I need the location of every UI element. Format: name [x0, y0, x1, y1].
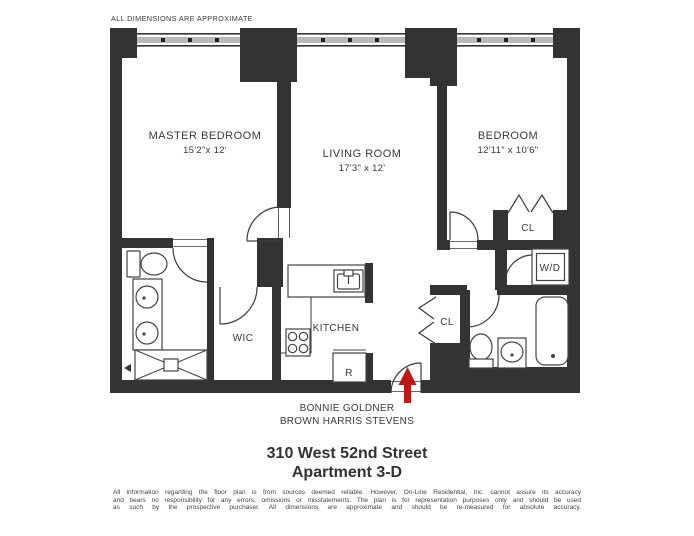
- wall-wic-kitchen: [272, 287, 281, 393]
- address-block: 310 West 52nd Street Apartment 3-D: [0, 444, 694, 482]
- door-bedroom: [450, 212, 478, 240]
- label-bedroom: BEDROOM: [478, 130, 538, 142]
- toilet-tank: [127, 251, 140, 277]
- tub-drain: [551, 354, 555, 358]
- door-master-bath: [173, 248, 207, 282]
- toilet-bowl: [141, 253, 167, 275]
- wall-mbr-lr: [277, 82, 291, 208]
- apartment-number: Apartment 3-D: [0, 463, 694, 482]
- dimensions-note: ALL DIMENSIONS ARE APPROXIMATE: [111, 14, 253, 23]
- label-refrigerator: R: [345, 368, 353, 379]
- door-bath2: [467, 295, 499, 327]
- label-wic: WIC: [233, 333, 254, 344]
- burner: [288, 344, 296, 352]
- street-address: 310 West 52nd Street: [0, 444, 694, 463]
- sink-drain: [510, 353, 513, 356]
- entry-arrow-icon: [399, 367, 417, 403]
- toilet-bowl: [470, 334, 492, 360]
- wall-kitchen-right-top: [365, 263, 373, 303]
- disclaimer-line: and bears no responsibility for any erro…: [113, 497, 581, 505]
- wall-bath1-wic: [207, 238, 214, 393]
- dims-master-bedroom: 15'2"x 12': [183, 145, 227, 156]
- opening-mbr: [279, 208, 290, 238]
- label-bedroom-closet: CL: [521, 223, 535, 234]
- wall-lr-bedroom: [437, 86, 447, 243]
- door-master-bedroom: [247, 207, 281, 241]
- master-bath-fixtures: [124, 251, 207, 380]
- wall-hall-block: [257, 238, 283, 287]
- burner: [299, 332, 307, 340]
- bifold-entry-closet: [419, 297, 436, 344]
- label-entry-closet: CL: [440, 317, 454, 328]
- broker-credit: BONNIE GOLDNER BROWN HARRIS STEVENS: [0, 402, 694, 428]
- disclaimer-line: All information regarding the floor plan…: [113, 489, 581, 497]
- sink-basin: [501, 342, 523, 362]
- door-wic: [220, 287, 257, 324]
- toilet-tank: [469, 359, 493, 368]
- dims-living-room: 17'3" x 12': [339, 163, 386, 174]
- agent-name: BONNIE GOLDNER: [0, 402, 694, 415]
- label-living-room: LIVING ROOM: [323, 148, 402, 160]
- shower-drain: [164, 359, 178, 371]
- wall-entrycl-bottom: [430, 343, 462, 393]
- column-1: [240, 28, 297, 82]
- wall-bottom-bath: [455, 367, 580, 380]
- burner: [299, 344, 307, 352]
- door-wd: [505, 255, 533, 283]
- wall-mbr-bottom: [110, 238, 173, 248]
- wall-bath2-top-right: [497, 285, 569, 295]
- wall-left: [110, 28, 122, 393]
- burner: [288, 332, 296, 340]
- shower-door-marker: [124, 364, 131, 372]
- window-segment: [457, 33, 553, 47]
- column-2: [405, 28, 457, 78]
- sink-basin: [136, 322, 158, 344]
- second-bath-fixtures: [469, 297, 568, 368]
- column-2-step: [430, 78, 457, 86]
- dims-bedroom: 12'11" x 10'6": [478, 145, 539, 156]
- sink-basin: [136, 286, 158, 308]
- disclaimer: All information regarding the floor plan…: [113, 489, 581, 512]
- label-washer-dryer: W/D: [540, 263, 561, 274]
- brokerage-name: BROWN HARRIS STEVENS: [0, 415, 694, 428]
- kitchen-faucet: [344, 270, 353, 276]
- opening-bath1: [173, 240, 207, 247]
- window-segment: [137, 33, 240, 47]
- sink-drain: [142, 296, 145, 299]
- closet-jamb-left: [493, 210, 508, 243]
- disclaimer-line: as such by the prospective purchaser. Al…: [113, 504, 581, 512]
- sink-drain: [142, 332, 145, 335]
- window-segment: [297, 33, 405, 47]
- window-band: [137, 33, 553, 47]
- opening-bedroom: [450, 242, 477, 249]
- wall-wd-nook: [495, 248, 507, 290]
- wall-right: [567, 28, 580, 393]
- wall-entrycl-top: [430, 285, 462, 295]
- label-master-bedroom: MASTER BEDROOM: [149, 130, 262, 142]
- wall-bedroom-bottom-a: [437, 240, 450, 250]
- floorplan-page: ALL DIMENSIONS ARE APPROXIMATE: [0, 0, 694, 536]
- label-kitchen: KITCHEN: [313, 323, 360, 334]
- closet-jamb-right: [553, 210, 567, 243]
- bifold-bedroom-closet: [508, 195, 553, 213]
